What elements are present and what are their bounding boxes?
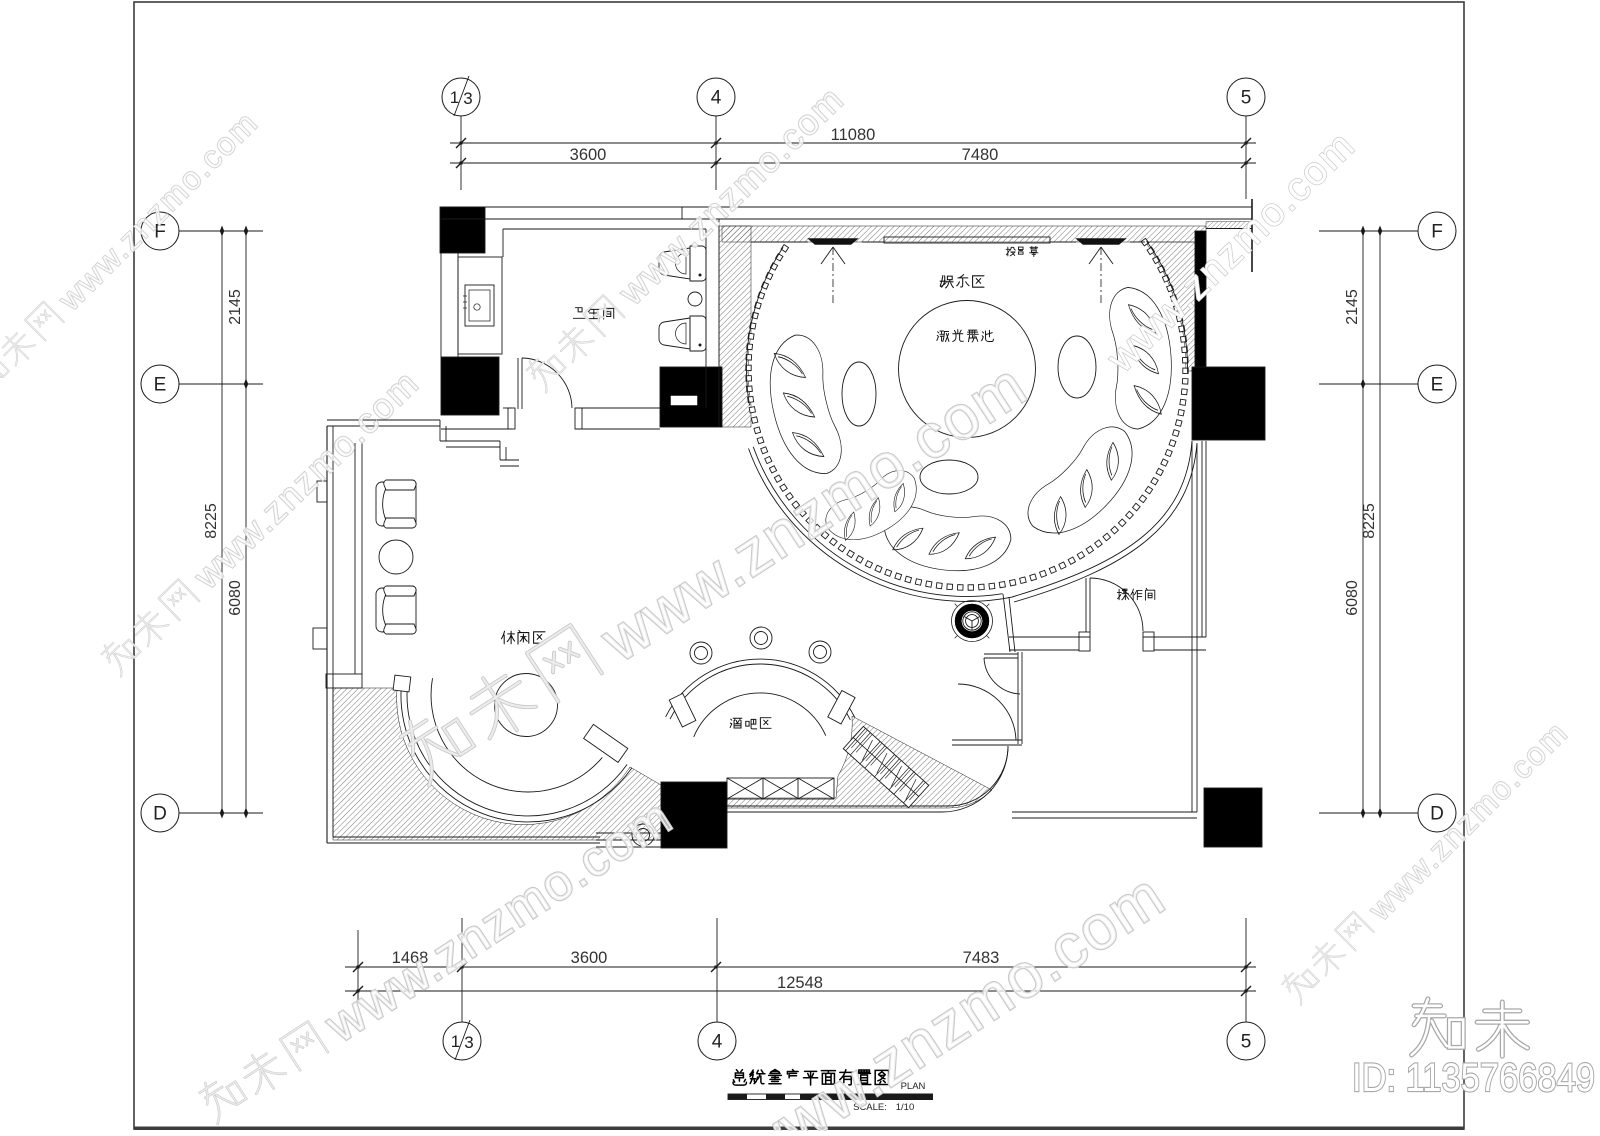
svg-text:5: 5 [1241,1032,1252,1053]
svg-text:E: E [154,375,167,396]
svg-text:ID: 1135766849: ID: 1135766849 [1352,1056,1595,1100]
svg-text:F: F [1431,222,1443,243]
svg-text:4: 4 [712,1032,723,1053]
svg-text:E: E [1431,375,1444,396]
svg-text:3: 3 [464,1033,473,1052]
svg-text:1: 1 [450,88,459,107]
svg-text:11080: 11080 [831,126,876,144]
svg-text:8225: 8225 [203,503,220,539]
svg-text:5: 5 [1241,88,1252,109]
svg-text:6080: 6080 [1344,580,1361,616]
svg-text:1/10: 1/10 [896,1102,915,1113]
svg-text:4: 4 [711,88,722,109]
svg-text:3600: 3600 [570,146,607,164]
svg-text:12548: 12548 [777,974,823,992]
svg-text:2145: 2145 [227,289,244,325]
svg-text:D: D [153,804,167,825]
svg-text:8225: 8225 [1361,503,1378,539]
svg-text:2145: 2145 [1344,289,1361,325]
svg-text:3: 3 [463,89,472,108]
svg-text:7480: 7480 [962,146,999,164]
svg-text:1: 1 [451,1032,460,1051]
svg-text:3600: 3600 [571,949,608,967]
svg-text:6080: 6080 [227,580,244,616]
